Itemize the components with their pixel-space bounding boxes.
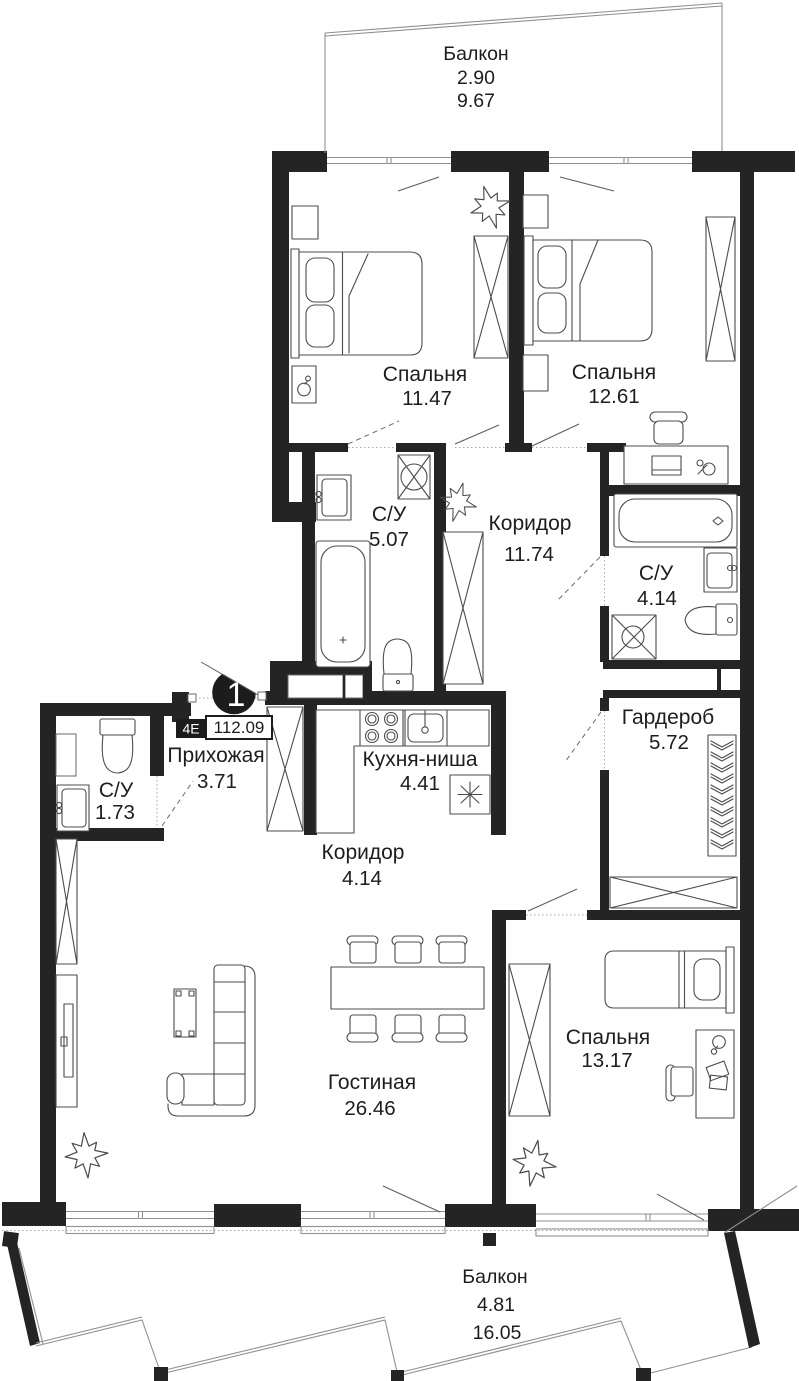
svg-text:9.67: 9.67	[457, 90, 495, 112]
svg-text:16.05: 16.05	[473, 1322, 522, 1344]
svg-text:4.14: 4.14	[637, 587, 677, 610]
svg-text:4Е: 4Е	[182, 721, 199, 737]
svg-text:112.09: 112.09	[214, 718, 265, 737]
svg-text:11.74: 11.74	[504, 543, 554, 566]
svg-text:Спальня: Спальня	[383, 363, 467, 386]
svg-text:2.90: 2.90	[457, 67, 495, 89]
svg-text:5.07: 5.07	[369, 528, 409, 551]
svg-text:Прихожая: Прихожая	[167, 744, 264, 767]
svg-text:Гостиная: Гостиная	[328, 1071, 416, 1094]
svg-text:11.47: 11.47	[402, 387, 452, 410]
svg-text:Кухня-ниша: Кухня-ниша	[362, 748, 477, 771]
svg-text:4.81: 4.81	[477, 1294, 515, 1316]
svg-text:С/У: С/У	[372, 503, 407, 526]
svg-text:Спальня: Спальня	[572, 361, 656, 384]
svg-text:3.71: 3.71	[197, 770, 237, 793]
svg-text:Гардероб: Гардероб	[622, 706, 714, 729]
svg-text:С/У: С/У	[99, 779, 134, 802]
svg-text:Коридор: Коридор	[489, 512, 572, 535]
svg-text:Балкон: Балкон	[443, 43, 508, 65]
svg-text:Балкон: Балкон	[462, 1266, 527, 1288]
svg-text:26.46: 26.46	[344, 1097, 395, 1120]
svg-text:12.61: 12.61	[588, 385, 639, 408]
svg-text:1: 1	[227, 676, 246, 714]
svg-text:С/У: С/У	[639, 562, 674, 585]
svg-text:1.73: 1.73	[95, 801, 135, 824]
svg-text:Спальня: Спальня	[566, 1026, 650, 1049]
svg-text:13.17: 13.17	[581, 1049, 632, 1072]
svg-text:4.14: 4.14	[342, 867, 382, 890]
svg-text:Коридор: Коридор	[322, 841, 405, 864]
svg-text:5.72: 5.72	[649, 731, 689, 754]
svg-text:4.41: 4.41	[400, 772, 440, 795]
